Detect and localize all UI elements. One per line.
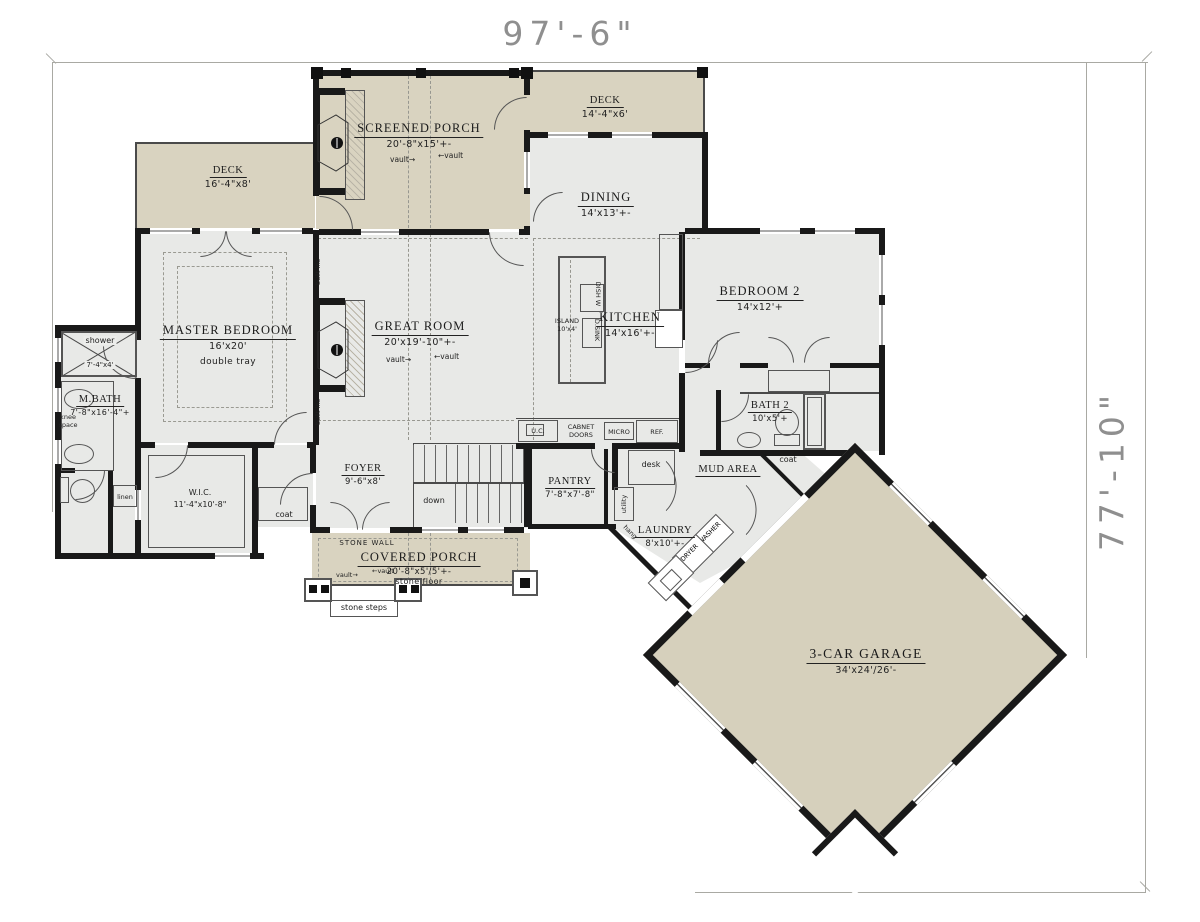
stairs-down-label: down	[423, 496, 445, 505]
bath-2-size: 10'x5'+	[748, 414, 792, 424]
vault-label: ←vault	[438, 151, 463, 160]
sink-label: D.SINK	[593, 319, 601, 341]
wall	[530, 132, 548, 138]
dimension-line	[1145, 62, 1146, 893]
ceiling-dash-line	[408, 76, 409, 228]
deck-left-name: DECK	[210, 165, 247, 178]
edge-line	[703, 70, 705, 134]
room-label-great-room: GREAT ROOM 20'x19'-10"+-	[372, 317, 469, 348]
covered-porch-name: COVERED PORCH	[358, 550, 481, 567]
utility-label: utility	[620, 495, 628, 513]
built-ins-label: built-ins	[314, 399, 322, 425]
vault-text: vault	[440, 352, 459, 361]
kitchen-name: KITCHEN	[596, 310, 664, 327]
vault-text: vault	[377, 567, 393, 575]
porch-post	[311, 67, 323, 79]
vault-label: ←vault	[434, 352, 459, 361]
garage-door-opening	[675, 682, 726, 733]
wall	[192, 228, 200, 234]
cabinet-doors-label: DOORS	[569, 431, 593, 439]
edge-line	[135, 142, 315, 144]
window	[524, 152, 530, 188]
covered-porch-floor: stone floor	[358, 577, 481, 586]
porch-post	[416, 68, 426, 78]
wall	[652, 132, 708, 138]
room-label-bedroom-2: BEDROOM 2 14'x12'+	[717, 282, 804, 313]
garage-door-opening	[752, 760, 803, 811]
room-label-laundry: LAUNDRY 8'x10'+-	[635, 520, 695, 549]
porch-post	[697, 67, 708, 78]
room-label-pantry: PANTRY 7'-8"x7'-8"	[545, 471, 595, 500]
wall	[612, 443, 683, 449]
wall	[399, 229, 489, 235]
stone-pier	[304, 578, 332, 602]
porch-post	[509, 68, 519, 78]
fireplace-icon	[316, 113, 352, 173]
wall	[588, 132, 612, 138]
garage-corner-notch	[812, 809, 898, 895]
screened-porch-name: SCREENED PORCH	[354, 121, 483, 138]
garage-laundry-door-gap	[687, 579, 724, 616]
vault-text: vault	[336, 571, 352, 579]
garage-window	[912, 761, 956, 805]
vault-label: vault→	[386, 355, 411, 364]
wall	[524, 188, 530, 194]
pantry-size: 7'-8"x7'-8"	[545, 490, 595, 500]
wall	[310, 527, 330, 533]
room-label-foyer: FOYER 9'-6"x8'	[342, 458, 385, 487]
dimension-arrow-icon	[46, 53, 57, 64]
cabinet-doors-label: CABNET	[568, 423, 594, 431]
room-label-kitchen: KITCHEN 14'x16'+-	[596, 308, 664, 339]
overall-width-dimension: 97'-6"	[502, 14, 637, 53]
window	[361, 229, 399, 235]
window	[260, 228, 302, 234]
knee-space-label: space	[58, 421, 77, 429]
island-label: ISLAND	[555, 317, 579, 325]
window	[879, 305, 885, 345]
room-label-master-bath: M.BATH 7'-8"x16'-4"+	[70, 389, 130, 417]
window	[548, 132, 588, 138]
edge-line	[516, 418, 683, 419]
garage-size: 34'x24'/26'-	[806, 665, 925, 676]
wall	[313, 188, 345, 195]
plumbing-fixture-icon	[737, 432, 761, 448]
window	[422, 527, 458, 533]
window	[215, 553, 250, 559]
foyer-size: 9'-6"x8'	[342, 477, 385, 487]
vault-label: vault→	[336, 571, 358, 579]
wic-size: 11'-4"x10'-8"	[174, 500, 227, 509]
deck-top-size: 14'-4"x6'	[582, 109, 628, 120]
porch-post	[341, 68, 351, 78]
stone-pier	[512, 570, 538, 596]
wall	[528, 524, 616, 529]
deck-left-size: 16'-4"x8'	[205, 179, 251, 190]
wall	[679, 373, 685, 452]
wall	[135, 228, 141, 340]
room-label-mud-area: MUD AREA	[695, 459, 760, 477]
island-size: 10'x4'	[557, 325, 577, 333]
stairs	[413, 445, 525, 482]
edge-line	[135, 142, 137, 230]
room-label-wic: W.I.C.	[189, 488, 212, 497]
dimension-line	[1086, 62, 1087, 658]
vault-text: vault	[444, 151, 463, 160]
wall	[310, 505, 316, 529]
ceiling-dash-line	[430, 76, 431, 228]
screened-porch-size: 20'-8"x15'+-	[354, 139, 483, 150]
great-room-name: GREAT ROOM	[372, 319, 469, 336]
wall	[250, 553, 264, 559]
ceiling-dash-line	[318, 420, 514, 421]
wall	[302, 228, 313, 234]
master-bath-name: M.BATH	[76, 394, 124, 407]
edge-line	[413, 443, 525, 444]
dishwasher-label: DISH W	[594, 282, 602, 306]
window	[879, 255, 885, 295]
master-bath-size: 7'-8"x16'-4"+	[70, 408, 130, 417]
wall	[830, 363, 885, 368]
dining-name: DINING	[578, 190, 634, 207]
wall	[504, 527, 524, 533]
fixture-outline	[807, 397, 822, 446]
wall	[188, 442, 256, 448]
window	[612, 132, 652, 138]
wall	[800, 228, 815, 234]
wall	[55, 553, 215, 559]
vault-arrow-icon: →	[409, 155, 415, 164]
vault-label: ←vault	[372, 567, 394, 575]
garage-window	[889, 482, 933, 526]
wall	[135, 520, 141, 556]
room-label-master-bedroom: MASTER BEDROOM 16'x20' double tray	[160, 321, 296, 367]
garage-name: 3-CAR GARAGE	[806, 646, 925, 664]
fixture-outline	[60, 477, 69, 503]
wall	[135, 442, 155, 448]
linen-label: linen	[117, 493, 133, 501]
shower-label: shower	[84, 336, 117, 345]
master-bedroom-size: 16'x20'	[160, 341, 296, 352]
desk-label: desk	[642, 460, 661, 469]
room-label-garage: 3-CAR GARAGE 34'x24'/26'-	[806, 645, 925, 676]
coat-label: coat	[275, 510, 292, 519]
wall	[740, 363, 768, 368]
window	[815, 228, 855, 234]
master-bedroom-name: MASTER BEDROOM	[160, 323, 296, 340]
bath-2-name: BATH 2	[748, 400, 792, 413]
wall	[108, 470, 113, 554]
vault-text: vault	[390, 155, 409, 164]
stone-wall-label: STONE WALL	[339, 539, 394, 547]
floor-plan-canvas: WASHER DRYER 97'-6" 77'-10" DECK 16'-4"x…	[0, 0, 1200, 922]
great-room-size: 20'x19'-10"+-	[372, 337, 469, 348]
vault-arrow-icon: →	[352, 571, 357, 579]
fireplace-icon	[316, 320, 352, 380]
dimension-arrow-icon	[1142, 51, 1153, 62]
room-label-deck-top: DECK 14'-4"x6'	[582, 90, 628, 120]
room-label-dining: DINING 14'x13'+-	[578, 188, 634, 219]
stairs	[455, 484, 525, 523]
knee-space-label: knee	[60, 413, 76, 421]
dimension-line	[695, 892, 1146, 893]
wall	[135, 378, 141, 442]
room-label-bath-2: BATH 2 10'x5'+	[748, 395, 792, 424]
dimension-line	[52, 62, 1148, 63]
ref-label: REF.	[650, 428, 663, 436]
wall	[390, 527, 422, 533]
wall	[685, 228, 760, 234]
bedroom-2-name: BEDROOM 2	[717, 284, 804, 301]
wall	[135, 442, 141, 490]
wall	[252, 228, 260, 234]
bedroom-2-size: 14'x12'+	[717, 302, 804, 313]
plumbing-fixture-icon	[64, 444, 94, 464]
vault-text: vault	[386, 355, 405, 364]
wall	[458, 527, 468, 533]
wall	[879, 295, 885, 305]
wall	[528, 449, 532, 524]
edge-line	[530, 70, 705, 72]
laundry-name: LAUNDRY	[635, 525, 695, 538]
fixture-outline	[768, 370, 830, 392]
wall	[879, 228, 885, 255]
wall	[307, 442, 313, 448]
mud-area-name: MUD AREA	[695, 464, 760, 477]
dimension-line	[52, 62, 53, 512]
wall	[310, 445, 316, 473]
porch-post	[521, 67, 533, 79]
built-ins-label: built-ins	[314, 259, 322, 285]
kitchen-size: 14'x16'+-	[596, 328, 664, 339]
window	[150, 228, 192, 234]
window	[760, 228, 800, 234]
stone-steps-label: stone steps	[341, 603, 387, 612]
wall	[313, 385, 345, 392]
vault-label: vault→	[390, 155, 415, 164]
wall	[702, 132, 708, 232]
ceiling-dash-line	[533, 238, 534, 440]
wall	[879, 345, 885, 455]
vault-arrow-icon: →	[405, 355, 411, 364]
deck-top-name: DECK	[587, 95, 624, 108]
garage-window	[982, 575, 1026, 619]
room-label-deck-left: DECK 16'-4"x8'	[205, 160, 251, 190]
room-label-screened-porch: SCREENED PORCH 20'-8"x15'+-	[354, 119, 483, 150]
master-bedroom-note: double tray	[160, 357, 296, 367]
dining-size: 14'x13'+-	[578, 208, 634, 219]
shower-size: 7'-4"x4'	[84, 361, 115, 369]
window	[468, 527, 504, 533]
pantry-name: PANTRY	[545, 476, 594, 489]
wall	[256, 442, 274, 448]
coat-label: coat	[779, 455, 796, 464]
overall-height-dimension: 77'-10"	[1093, 389, 1132, 551]
foyer-name: FOYER	[342, 463, 385, 476]
micro-label: MICRO	[608, 428, 630, 436]
uc-cabinet-label: U.C.	[531, 427, 544, 435]
fixture-outline	[659, 234, 683, 310]
laundry-size: 8'x10'+-	[635, 539, 695, 549]
